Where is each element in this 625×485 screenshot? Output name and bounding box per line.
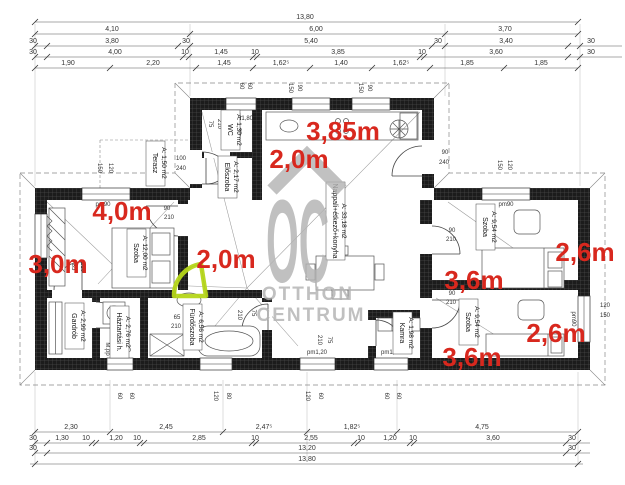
dim-label: 6,00: [309, 26, 323, 33]
dim-label: 3,70: [498, 26, 512, 33]
room-area: A: 1,50 m2: [160, 147, 167, 179]
red-measurement: 3,85m: [306, 116, 380, 146]
armchair: [514, 210, 540, 234]
size-label: 65: [174, 315, 181, 321]
watermark-line1: OTTHON: [262, 284, 354, 305]
dim-label: 1,90: [61, 60, 75, 67]
size-label: 240: [439, 160, 450, 166]
room-name: Nappali+étkező+konyha: [331, 183, 338, 258]
dim-label: 1,85: [460, 60, 474, 67]
dim-label: 1,45: [214, 49, 228, 56]
size-label: 210: [446, 300, 457, 306]
pillow: [152, 233, 170, 255]
room-name: Kamra: [398, 323, 405, 344]
red-measurement: 2,6m: [555, 237, 614, 267]
size-label: 150: [287, 83, 293, 94]
size-label: 60: [246, 83, 252, 90]
dim-label: 13,80: [298, 456, 316, 463]
size-label: 90: [442, 150, 449, 156]
size-label: 90: [164, 206, 171, 212]
size-label: 210: [316, 335, 322, 346]
dim-label: 30: [587, 38, 595, 45]
red-measurement: 4,0m: [92, 196, 151, 226]
red-measurement: 2,6m: [526, 318, 585, 348]
size-label: 90: [296, 85, 302, 92]
dim-label: 30: [568, 445, 576, 452]
dim-label: 30: [29, 445, 37, 452]
red-measurement: 3,0m: [28, 249, 87, 279]
room-area: A: 2,99 m2: [79, 310, 86, 342]
wall-segment: [420, 200, 432, 358]
size-label: 75: [207, 121, 213, 128]
armchair: [518, 300, 544, 320]
size-label: 120: [304, 391, 310, 402]
dim-label: 10: [133, 435, 141, 442]
size-label: 75: [326, 337, 332, 344]
room-name: Szoba: [481, 217, 488, 237]
window-label: pm1,20: [307, 350, 328, 356]
size-label: 210: [171, 324, 182, 330]
fridge: [400, 113, 417, 139]
wall-segment: [252, 110, 262, 200]
room-area: A: 2,76 m2: [124, 316, 131, 348]
dim-label: 10: [357, 435, 365, 442]
floor-plan-canvas: 13,80 4,10 6,00 3,70 30 3,80 30 5,40 30 …: [0, 0, 625, 485]
size-label: 150: [96, 163, 102, 174]
dim-label: 1,40: [334, 60, 348, 67]
dim-label: 4,10: [105, 26, 119, 33]
size-label: 60: [317, 393, 323, 400]
red-measurement: 2,0m: [196, 244, 255, 274]
size-label: 100: [176, 156, 187, 162]
window-label: pm90: [498, 202, 514, 208]
dim-label: 10: [181, 49, 189, 56]
dim-label: 2,47⁵: [256, 424, 273, 431]
dim-label: 2,45: [159, 424, 173, 431]
dim-label: 10: [82, 435, 90, 442]
wall-segment: [140, 298, 148, 358]
size-label: 60: [128, 393, 134, 400]
room-name: Háztartási h.: [115, 312, 122, 351]
size-label: 150: [600, 313, 611, 319]
room-name: Gardrób: [70, 313, 77, 339]
dim-label: 2,85: [192, 435, 206, 442]
dim-label: 1,82⁵: [344, 424, 361, 431]
dim-label: 1,62⁵: [273, 60, 290, 67]
dim-label: 3,40: [499, 38, 513, 45]
size-label: 210: [446, 237, 457, 243]
size-label: 60: [383, 393, 389, 400]
dim-label: 1,30: [55, 435, 69, 442]
dim-label: 13,20: [298, 445, 316, 452]
size-label: 210: [164, 215, 175, 221]
size-label: 60: [238, 83, 244, 90]
dim-label: 5,40: [304, 38, 318, 45]
size-label: 60: [395, 393, 401, 400]
room-area: A: 9,54 m2: [473, 306, 480, 338]
room-area: A: 33,18 m2: [340, 203, 347, 238]
dim-label: 2,30: [64, 424, 78, 431]
dim-label: 4,75: [475, 424, 489, 431]
dim-label: 2,20: [146, 60, 160, 67]
dim-label: 30: [29, 49, 37, 56]
dim-label: 3,60: [489, 49, 503, 56]
dim-label: 30: [182, 38, 190, 45]
size-label: 60: [116, 393, 122, 400]
room-area: A: 9,54 m2: [490, 211, 497, 243]
bathtub: [198, 326, 260, 356]
dim-label: 30: [568, 435, 576, 442]
dim-label: 13,80: [296, 14, 314, 21]
dim-label: 2,55: [304, 435, 318, 442]
size-label: 90: [449, 228, 456, 234]
dim-label: 4,00: [108, 49, 122, 56]
top-dimension-rows: 13,80 4,10 6,00 3,70 30 3,80 30 5,40 30 …: [29, 14, 622, 71]
dim-label: 3,60: [486, 435, 500, 442]
dim-label: 3,85: [331, 49, 345, 56]
room-name: Fürdőszoba: [188, 309, 195, 346]
dim-label: 1,20: [383, 435, 397, 442]
dim-label: 10: [251, 435, 259, 442]
entry-door-arc: [392, 146, 422, 176]
dim-label: 3,80: [105, 38, 119, 45]
size-label: 120: [506, 160, 512, 171]
dim-label: 10: [409, 435, 417, 442]
dim-label: 1,20: [109, 435, 123, 442]
size-label: 120: [107, 163, 113, 174]
dim-label: 30: [434, 38, 442, 45]
room-name: Terasz: [151, 153, 158, 174]
chair: [375, 264, 384, 280]
kitchen-sink: [280, 120, 298, 132]
room-area: A: 1,98 m2: [407, 317, 414, 349]
room-name: Szoba: [464, 312, 471, 332]
dim-label: 30: [29, 435, 37, 442]
dim-label: 30: [29, 38, 37, 45]
red-measurement: 2,0m: [269, 144, 328, 174]
dim-label: 1,45: [217, 60, 231, 67]
red-measurement: 3,6m: [444, 265, 503, 295]
room-area: A: 12,00 m2: [141, 235, 148, 270]
pillow: [548, 271, 562, 287]
size-label: 75: [250, 310, 256, 317]
size-label: 240: [176, 166, 187, 172]
dim-label: 30: [587, 49, 595, 56]
red-measurement: 3,6m: [442, 342, 501, 372]
floor-plan-page: 13,80 4,10 6,00 3,70 30 3,80 30 5,40 30 …: [0, 0, 625, 485]
room-name: Előszoba: [223, 163, 230, 192]
room-name: Szoba: [132, 243, 139, 263]
dim-label: 10: [418, 49, 426, 56]
dim-label: 1,85: [534, 60, 548, 67]
room-area: A: 1,30 m2: [235, 114, 242, 146]
size-label: 90: [366, 85, 372, 92]
size-label: 120: [212, 391, 218, 402]
dim-label: 10: [251, 49, 259, 56]
room-area: A: 6,56 m2: [197, 311, 204, 343]
size-label: 150: [496, 160, 502, 171]
size-label: 150: [357, 83, 363, 94]
bottom-dimension-rows: 2,30 2,45 2,47⁵ 1,82⁵ 4,75 30 1,30 10 1,…: [29, 424, 590, 467]
dim-label: 1,62⁵: [393, 60, 410, 67]
watermark-line2: CENTRUM: [257, 305, 366, 326]
room-name: WC: [226, 124, 233, 136]
pillow: [152, 261, 170, 283]
size-label: 210: [236, 310, 242, 321]
size-label: M.pp: [104, 342, 110, 356]
watermark: OC OTTHON CENTRUM: [257, 155, 366, 326]
size-label: 80: [225, 393, 231, 400]
room-area: A: 2,17 m2: [232, 161, 239, 193]
size-label: 120: [600, 303, 611, 309]
